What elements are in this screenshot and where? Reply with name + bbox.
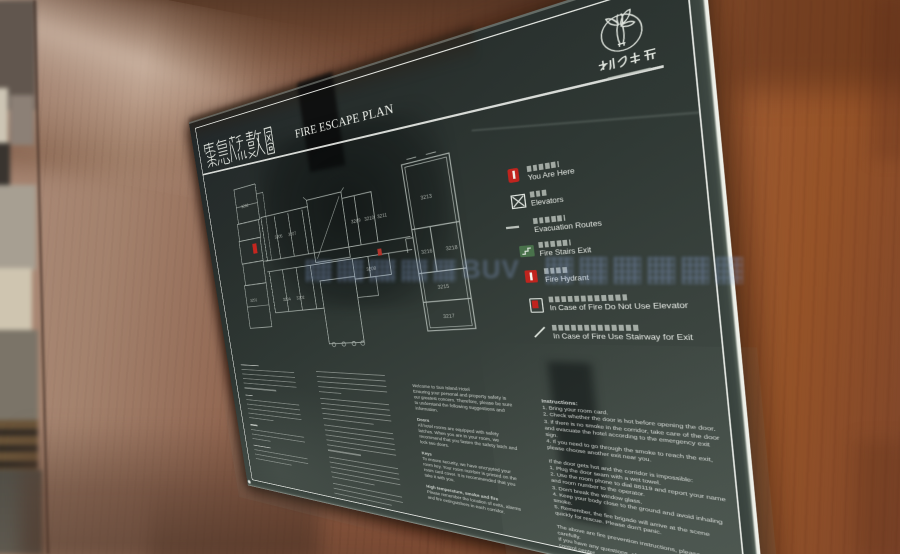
svg-text:3201: 3201 [250,298,258,304]
svg-text:3217: 3217 [443,313,456,320]
svg-text:3209: 3209 [351,217,361,225]
svg-text:3204: 3204 [283,297,292,303]
svg-text:3213: 3213 [420,193,432,202]
svg-text:3203: 3203 [241,203,249,210]
svg-text:3210: 3210 [364,215,375,223]
svg-text:3205: 3205 [274,233,283,240]
svg-text:3207: 3207 [288,231,297,238]
svg-text:3202: 3202 [296,295,305,301]
svg-text:3211: 3211 [377,212,388,220]
